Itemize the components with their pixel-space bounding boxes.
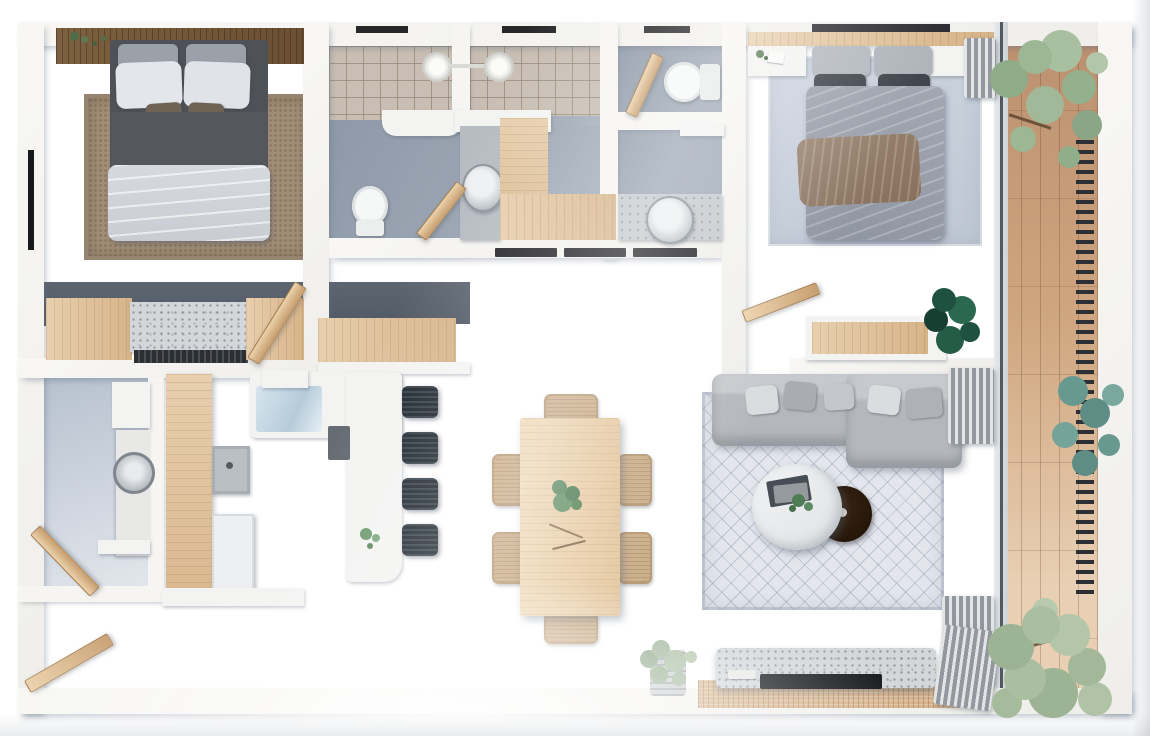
bar-stool — [402, 386, 438, 418]
dining-chair — [544, 612, 598, 644]
closet-track — [564, 248, 626, 257]
wall-shower-partition — [452, 22, 470, 120]
wardrobe-cabinet-left — [46, 298, 132, 360]
dresser-counter — [130, 302, 248, 352]
shower-bench — [382, 110, 462, 136]
range-hood-box — [262, 370, 308, 388]
closet-track — [633, 248, 697, 257]
shelf-plant — [70, 32, 79, 41]
laundry-cabinet — [112, 382, 150, 428]
plant-balcony-top — [1018, 40, 1052, 74]
bar-stool — [402, 478, 438, 510]
laundry-shelf — [98, 540, 150, 554]
plant-entry — [652, 640, 670, 658]
glass-wall-frame — [1000, 22, 1003, 688]
plant-bedroom2 — [932, 288, 956, 312]
floor-plan — [0, 0, 1150, 736]
dining-chair — [618, 454, 652, 506]
curtain-bedroom2 — [964, 38, 996, 98]
nightstand-plant — [756, 50, 764, 58]
centerpiece-plant — [552, 480, 567, 495]
shower-bar — [448, 64, 488, 68]
page-edge-shadow-bottom — [0, 714, 1150, 736]
kitchen-tall-counter — [166, 374, 212, 598]
wall-outer-right — [1098, 22, 1132, 714]
kitchen-upper-cabinet — [318, 318, 456, 364]
kitchen-island-peninsula — [346, 372, 402, 582]
bar-stool — [402, 432, 438, 464]
basin-sink-wc — [646, 196, 694, 244]
curtain-living-top — [948, 368, 994, 444]
island-decor — [378, 540, 392, 548]
ceiling-vent — [644, 26, 690, 33]
pillow — [874, 46, 932, 76]
bathroom-cabinet-horizontal — [500, 194, 616, 240]
bed-blanket-brown — [796, 133, 921, 207]
kitchen-bottom-ledge — [162, 588, 304, 606]
wc-shelf — [680, 124, 724, 136]
tv-screen — [760, 674, 882, 689]
wall-bedroom2-left — [722, 22, 746, 378]
shower-head — [486, 54, 512, 80]
remote — [728, 670, 756, 679]
headboard-rail — [812, 24, 950, 32]
plant-balcony-bottom — [1022, 606, 1060, 644]
toilet-tank-wc — [700, 64, 720, 100]
island-plant — [360, 528, 372, 540]
plant-pot-entry — [650, 650, 686, 696]
toilet-bowl-wc — [664, 62, 704, 102]
sofa-pillow — [905, 386, 943, 419]
counter-inset — [328, 426, 350, 460]
bed-duvet — [108, 165, 270, 241]
faucet — [226, 462, 233, 469]
closet-track — [495, 248, 557, 257]
basin-sink — [462, 164, 504, 212]
sofa-chaise — [846, 374, 962, 468]
page-edge-shadow-right — [1132, 0, 1150, 736]
curtain-bottom-right — [933, 624, 1002, 711]
bar-stool — [402, 524, 438, 556]
ceiling-vent — [356, 26, 408, 33]
pillow — [812, 46, 870, 76]
sofa-pillow — [823, 383, 855, 411]
ceiling-vent — [502, 26, 556, 33]
dining-table — [520, 418, 620, 616]
slatted-bench — [134, 350, 248, 363]
balcony-railing-slats — [1076, 140, 1094, 598]
sofa-pillow — [745, 384, 780, 415]
window-slit — [28, 150, 34, 250]
sofa-pillow — [783, 381, 817, 412]
bed-blanket-dark — [111, 112, 267, 172]
nightstand-decor — [767, 51, 784, 64]
cooktop — [256, 386, 322, 432]
dresser-front — [812, 322, 928, 354]
headboard-shelf-2 — [748, 32, 994, 46]
dining-chair — [618, 532, 652, 584]
kitchen-appliance — [212, 514, 254, 594]
table-plant — [792, 494, 805, 507]
plant-balcony-middle — [1058, 376, 1088, 406]
toilet-tank — [356, 220, 384, 236]
sofa-pillow — [866, 384, 901, 416]
shower-head — [424, 54, 450, 80]
kitchen-sink — [212, 446, 250, 494]
washing-machine — [113, 452, 155, 494]
